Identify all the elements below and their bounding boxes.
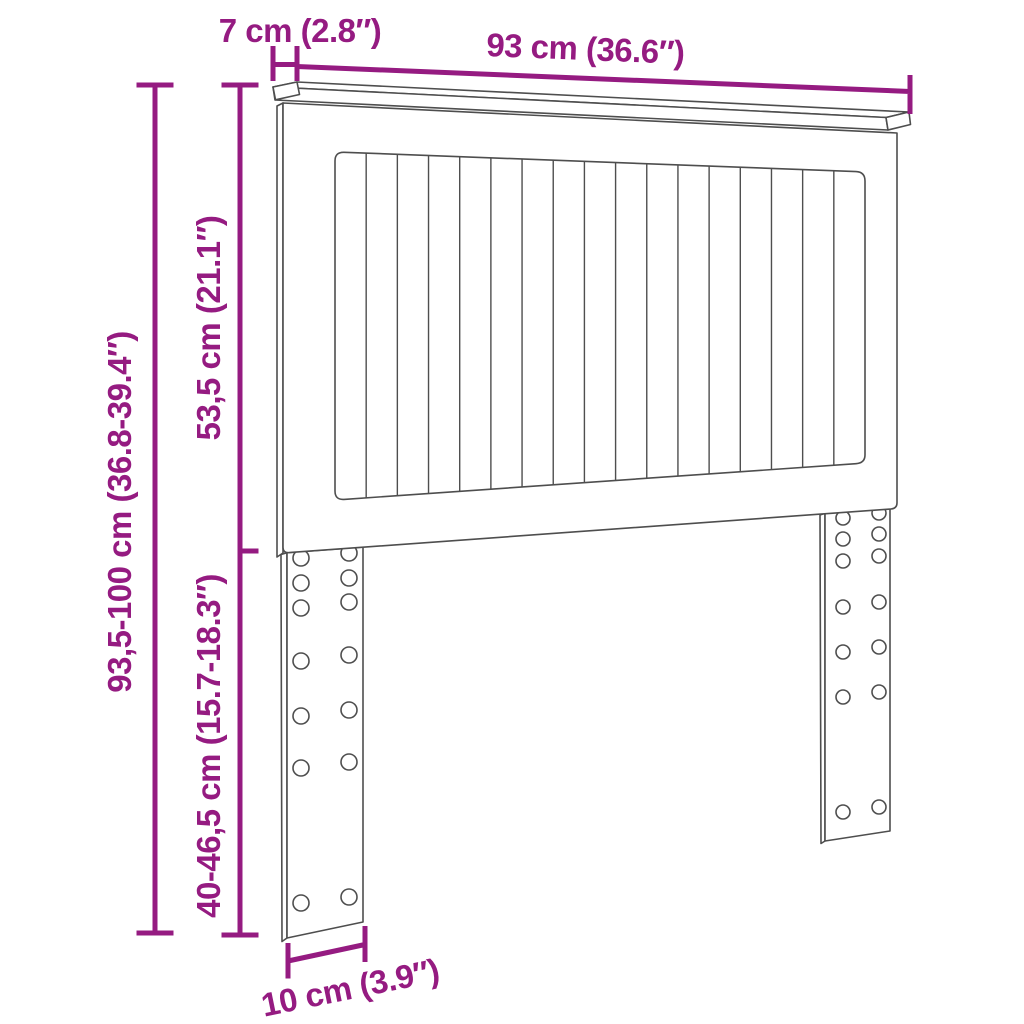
screw-hole bbox=[872, 640, 886, 654]
screw-hole bbox=[836, 532, 850, 546]
screw-hole bbox=[836, 690, 850, 704]
screw-hole bbox=[872, 527, 886, 541]
slat-area-outline bbox=[335, 152, 865, 499]
screw-hole bbox=[341, 754, 357, 770]
screw-hole bbox=[293, 760, 309, 776]
screw-hole bbox=[293, 653, 309, 669]
screw-hole bbox=[341, 570, 357, 586]
screw-hole bbox=[293, 895, 309, 911]
screw-hole bbox=[341, 647, 357, 663]
headboard-panel bbox=[277, 103, 897, 557]
screw-hole bbox=[836, 554, 850, 568]
screw-hole bbox=[872, 685, 886, 699]
leg-height-label: 40-46,5 cm (15.7-18.3″) bbox=[190, 574, 227, 918]
screw-hole bbox=[872, 595, 886, 609]
screw-hole bbox=[836, 645, 850, 659]
left-leg-side-face bbox=[281, 553, 287, 942]
product-dimension-diagram: 7 cm (2.8″) 93 cm (36.6″) 93,5-100 cm (3… bbox=[0, 0, 1024, 1024]
screw-hole bbox=[341, 889, 357, 905]
screw-hole bbox=[836, 600, 850, 614]
screw-hole bbox=[293, 575, 309, 591]
screw-hole bbox=[836, 805, 850, 819]
screw-hole bbox=[341, 594, 357, 610]
diagram-svg: 7 cm (2.8″) 93 cm (36.6″) 93,5-100 cm (3… bbox=[0, 0, 1024, 1024]
screw-hole bbox=[293, 708, 309, 724]
screw-hole bbox=[341, 702, 357, 718]
right-leg bbox=[820, 506, 890, 844]
cap-depth-label: 7 cm (2.8″) bbox=[219, 12, 382, 49]
screw-hole bbox=[293, 600, 309, 616]
left-leg bbox=[281, 545, 363, 942]
panel-side-face bbox=[277, 103, 283, 557]
upper-height-label: 53,5 cm (21.1″) bbox=[190, 216, 227, 441]
screw-hole bbox=[872, 549, 886, 563]
total-height-label: 93,5-100 cm (36.8-39.4″) bbox=[101, 331, 138, 693]
screw-hole bbox=[872, 800, 886, 814]
